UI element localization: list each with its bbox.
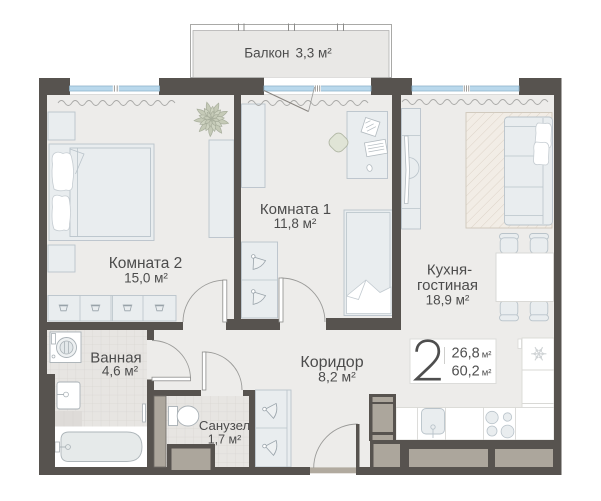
svg-text:8,2 м²: 8,2 м² — [318, 369, 356, 385]
svg-text:11,8 м²: 11,8 м² — [274, 216, 317, 231]
svg-text:Кухня-: Кухня- — [427, 262, 472, 279]
svg-text:Санузел: Санузел — [199, 418, 250, 433]
svg-text:15,0 м²: 15,0 м² — [124, 271, 168, 286]
svg-text:гостиная: гостиная — [417, 277, 478, 294]
svg-text:Комната 2: Комната 2 — [109, 255, 183, 272]
svg-text:1,7 м²: 1,7 м² — [208, 433, 242, 447]
svg-text:18,9 м²: 18,9 м² — [426, 293, 470, 308]
svg-text:4,6 м²: 4,6 м² — [102, 364, 139, 379]
svg-text:Балкон3,3 м²: Балкон3,3 м² — [244, 46, 332, 61]
